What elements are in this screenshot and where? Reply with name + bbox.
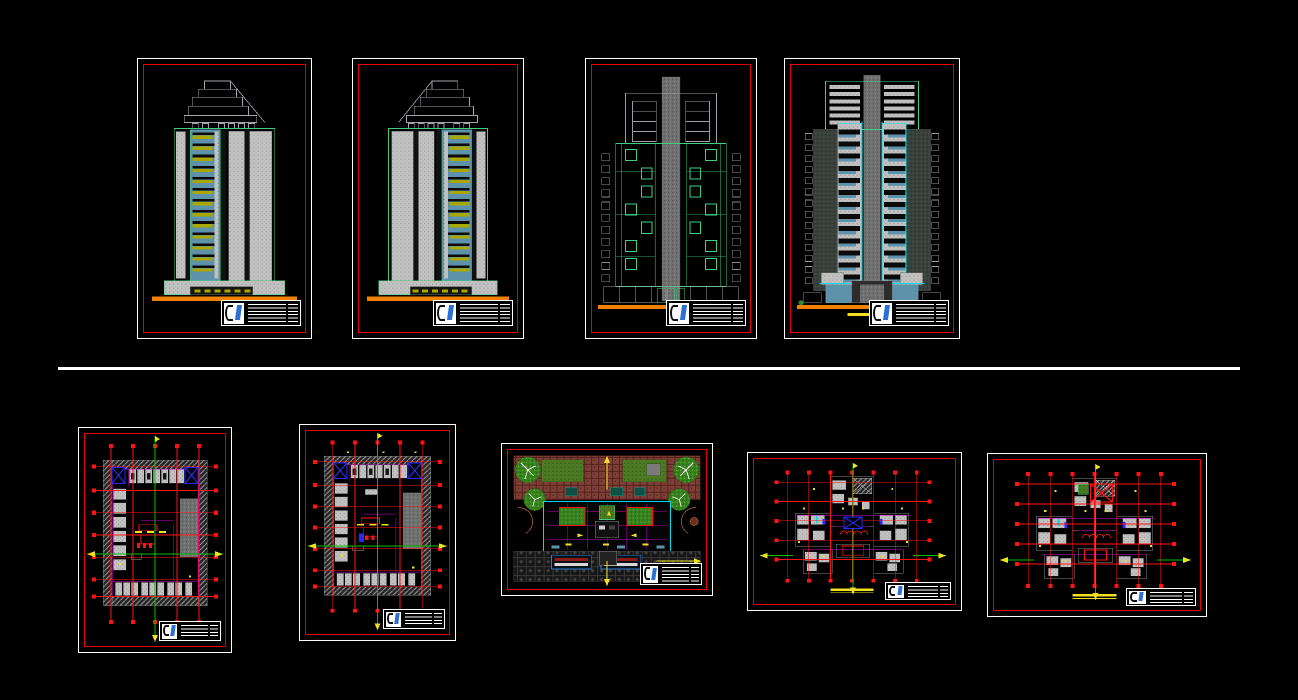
- firm-logo-icon: [872, 303, 892, 324]
- sheet-border-floor-plan-2: [305, 430, 450, 635]
- firm-logo-icon: [386, 612, 402, 627]
- sheet-border-typical-plan-2: [993, 459, 1201, 611]
- title-block: [221, 300, 301, 326]
- title-block: [640, 563, 702, 585]
- title-block-text-lines: [908, 586, 947, 597]
- sheet-typical-plan-2[interactable]: [987, 453, 1207, 617]
- sheet-floor-plan-2[interactable]: [299, 424, 456, 641]
- elevation-2-drawing: [359, 65, 517, 332]
- elevator-core: [662, 77, 680, 301]
- sheet-border-floor-plan-1: [84, 433, 226, 647]
- title-block-text-lines: [896, 304, 946, 323]
- roof-garden-patch: [1078, 484, 1088, 494]
- title-block: [666, 300, 746, 326]
- sheet-elevation-4[interactable]: [784, 58, 960, 339]
- title-block-text-lines: [693, 304, 743, 323]
- floor-plan-1-drawing: [85, 434, 225, 646]
- title-block-text-lines: [405, 613, 441, 626]
- side-ladder-right: [732, 154, 740, 282]
- elevation-1-drawing: [144, 65, 305, 332]
- elevation-3-drawing: [592, 65, 750, 332]
- floor-plan-2-drawing: [306, 431, 449, 634]
- sheet-border-elevation-4: [790, 64, 954, 333]
- title-block-text-lines: [248, 304, 298, 323]
- firm-logo-icon: [162, 624, 178, 639]
- cad-canvas[interactable]: [0, 0, 1298, 700]
- sheet-border-elevation-2: [358, 64, 518, 333]
- stair-symbol: [844, 517, 862, 529]
- sheet-site-plan[interactable]: [501, 443, 713, 596]
- title-block: [433, 300, 513, 326]
- title-block: [869, 300, 949, 326]
- title-block: [383, 609, 445, 629]
- edge-ladder-left: [805, 134, 812, 284]
- building-footprint: [544, 502, 671, 552]
- firm-logo-icon: [224, 303, 244, 324]
- sheet-border-site-plan: [507, 449, 707, 590]
- entry-stair: [599, 551, 617, 565]
- title-block-text-lines: [460, 304, 510, 323]
- title-block: [1126, 588, 1196, 606]
- title-block-text-lines: [181, 625, 217, 638]
- sheet-typical-plan-1[interactable]: [747, 452, 962, 611]
- elevation-4-drawing: [791, 65, 953, 332]
- sheet-border-elevation-1: [143, 64, 306, 333]
- section-divider-line: [58, 367, 1240, 370]
- sheet-elevation-2[interactable]: [352, 58, 524, 339]
- title-block-text-lines: [1150, 592, 1192, 603]
- firm-logo-icon: [436, 303, 456, 324]
- firm-logo-icon: [643, 566, 659, 583]
- title-block: [159, 621, 221, 641]
- title-block: [885, 582, 951, 600]
- sheet-elevation-1[interactable]: [137, 58, 312, 339]
- firm-logo-icon: [888, 585, 905, 598]
- side-ladder-left: [602, 154, 610, 282]
- edge-ladder-right: [932, 134, 939, 284]
- sheet-floor-plan-1[interactable]: [78, 427, 232, 653]
- sheet-elevation-3[interactable]: [585, 58, 757, 339]
- elevator-core: [864, 75, 880, 303]
- sheet-border-elevation-3: [591, 64, 751, 333]
- sheet-border-typical-plan-1: [753, 458, 956, 605]
- firm-logo-icon: [669, 303, 689, 324]
- firm-logo-icon: [1129, 591, 1147, 604]
- title-block-text-lines: [662, 567, 698, 582]
